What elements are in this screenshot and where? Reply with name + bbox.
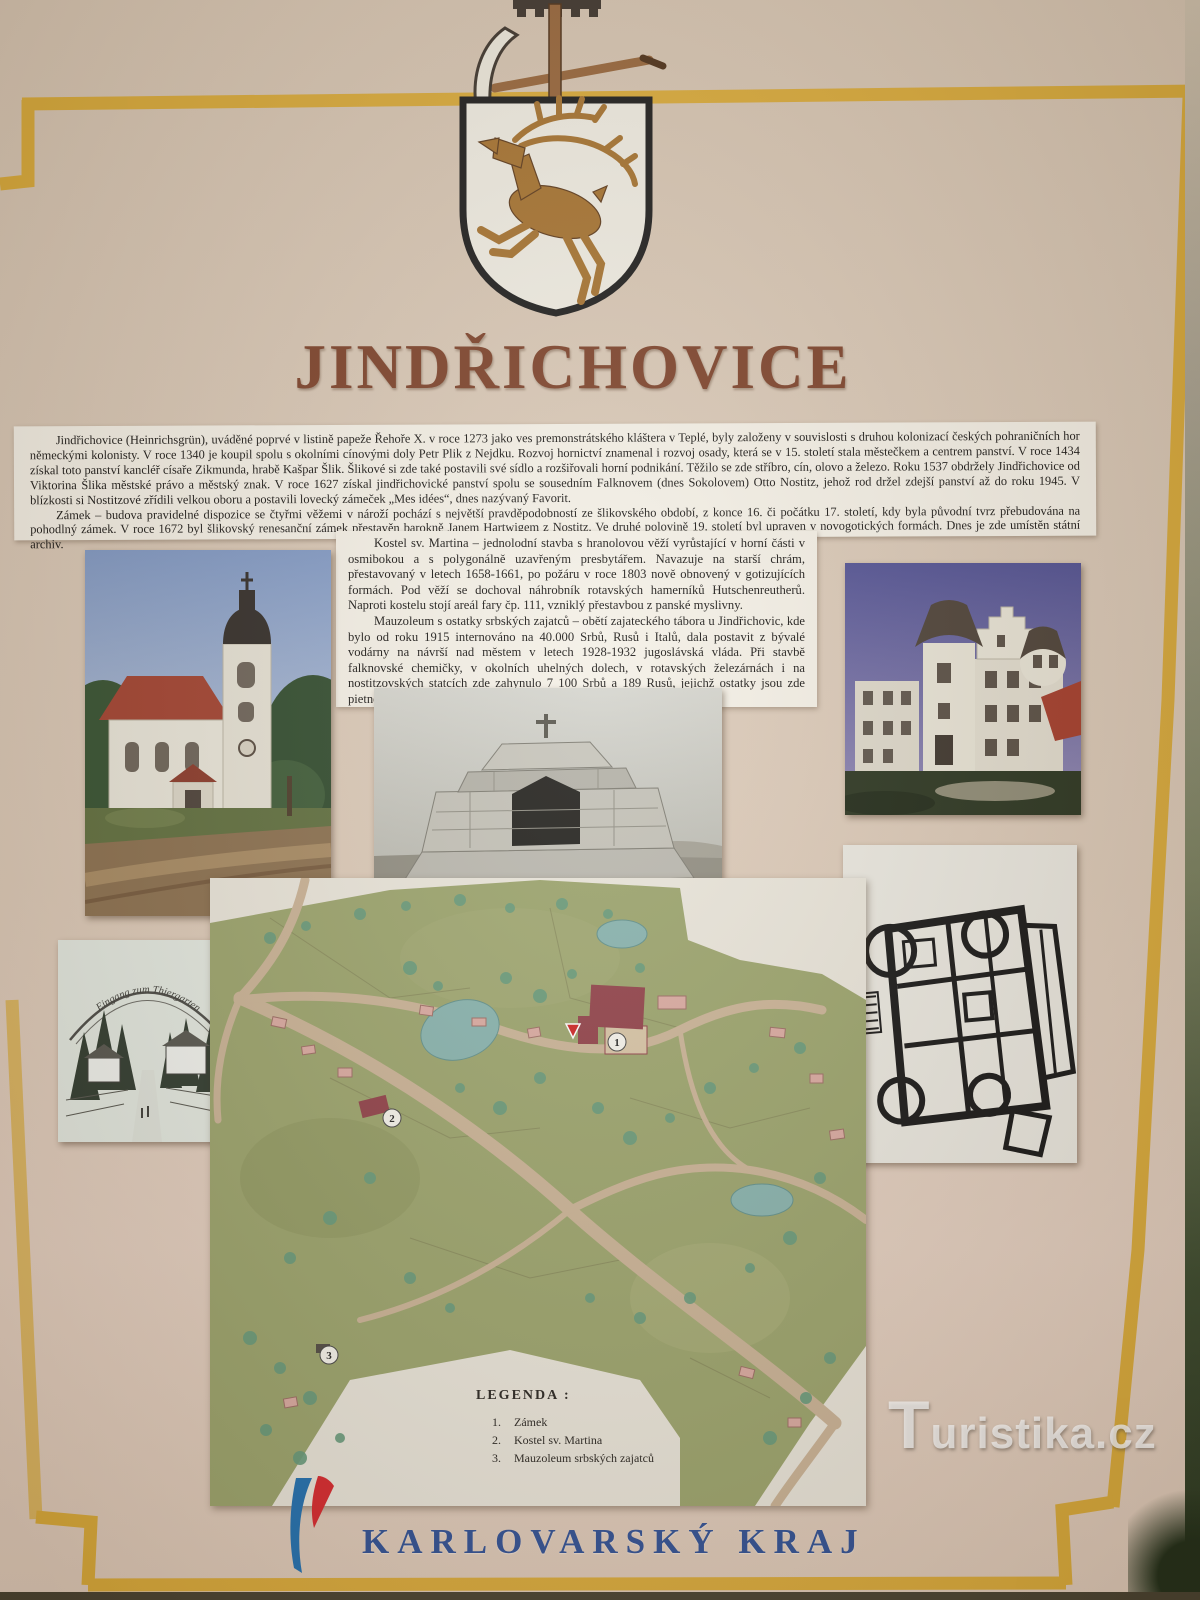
watermark-turistika: Turistika.cz <box>888 1386 1188 1464</box>
legend-title: LEGENDA : <box>476 1388 571 1403</box>
frame-bottom-right-step <box>1062 1502 1113 1585</box>
footer-region: KARLOVARSKÝ KRAJ <box>282 1480 866 1576</box>
frame-bottom-line <box>88 1583 1066 1585</box>
frame-bottom-left-step <box>36 1517 91 1585</box>
photo-edge-vegetation <box>1185 0 1200 1600</box>
region-name: KARLOVARSKÝ KRAJ <box>362 1522 866 1562</box>
map-marker-1: 1 <box>614 1037 620 1049</box>
legend-item-2-num: 2. <box>492 1433 501 1447</box>
coat-of-arms <box>435 0 680 322</box>
legend-item-3-label: Mauzoleum srbských zajatců <box>514 1451 654 1465</box>
map-marker-3: 3 <box>326 1350 332 1362</box>
frame-top-left-step <box>0 100 28 184</box>
legend-item-1-num: 1. <box>492 1415 501 1429</box>
photo-corner-leaves <box>1128 1480 1200 1600</box>
village-map: 1 2 3 LEGENDA : 1. Zámek 2. Kostel sv. M… <box>210 878 866 1506</box>
legend-item-1-label: Zámek <box>514 1415 547 1429</box>
column-text-paper: Kostel sv. Martina – jednolodní stavba s… <box>336 531 817 707</box>
mausoleum-photo <box>374 688 722 906</box>
church-photo <box>85 550 331 916</box>
legend-item-2-label: Kostel sv. Martina <box>514 1433 603 1447</box>
intro-text-paper: Jindřichovice (Heinrichsgrün), uváděné p… <box>14 422 1096 541</box>
frame-right-line <box>1113 97 1189 1507</box>
page-title: JINDŘICHOVICE <box>0 331 1146 404</box>
legend-item-3-num: 3. <box>492 1451 501 1465</box>
castle-photo <box>845 563 1081 815</box>
karlovarsky-kraj-logo-icon <box>282 1476 352 1576</box>
frame-left-line <box>12 1000 36 1519</box>
info-panel-photo: JINDŘICHOVICE Jindřichovice (Heinrichsgr… <box>0 0 1200 1600</box>
intro-paragraph-history: Jindřichovice (Heinrichsgrün), uváděné p… <box>30 429 1080 508</box>
column-paragraph-kostel: Kostel sv. Martina – jednolodní stavba s… <box>348 536 805 614</box>
photo-edge-bottom <box>0 1592 1200 1600</box>
castle-floorplan <box>843 845 1077 1163</box>
map-marker-2: 2 <box>389 1113 395 1125</box>
